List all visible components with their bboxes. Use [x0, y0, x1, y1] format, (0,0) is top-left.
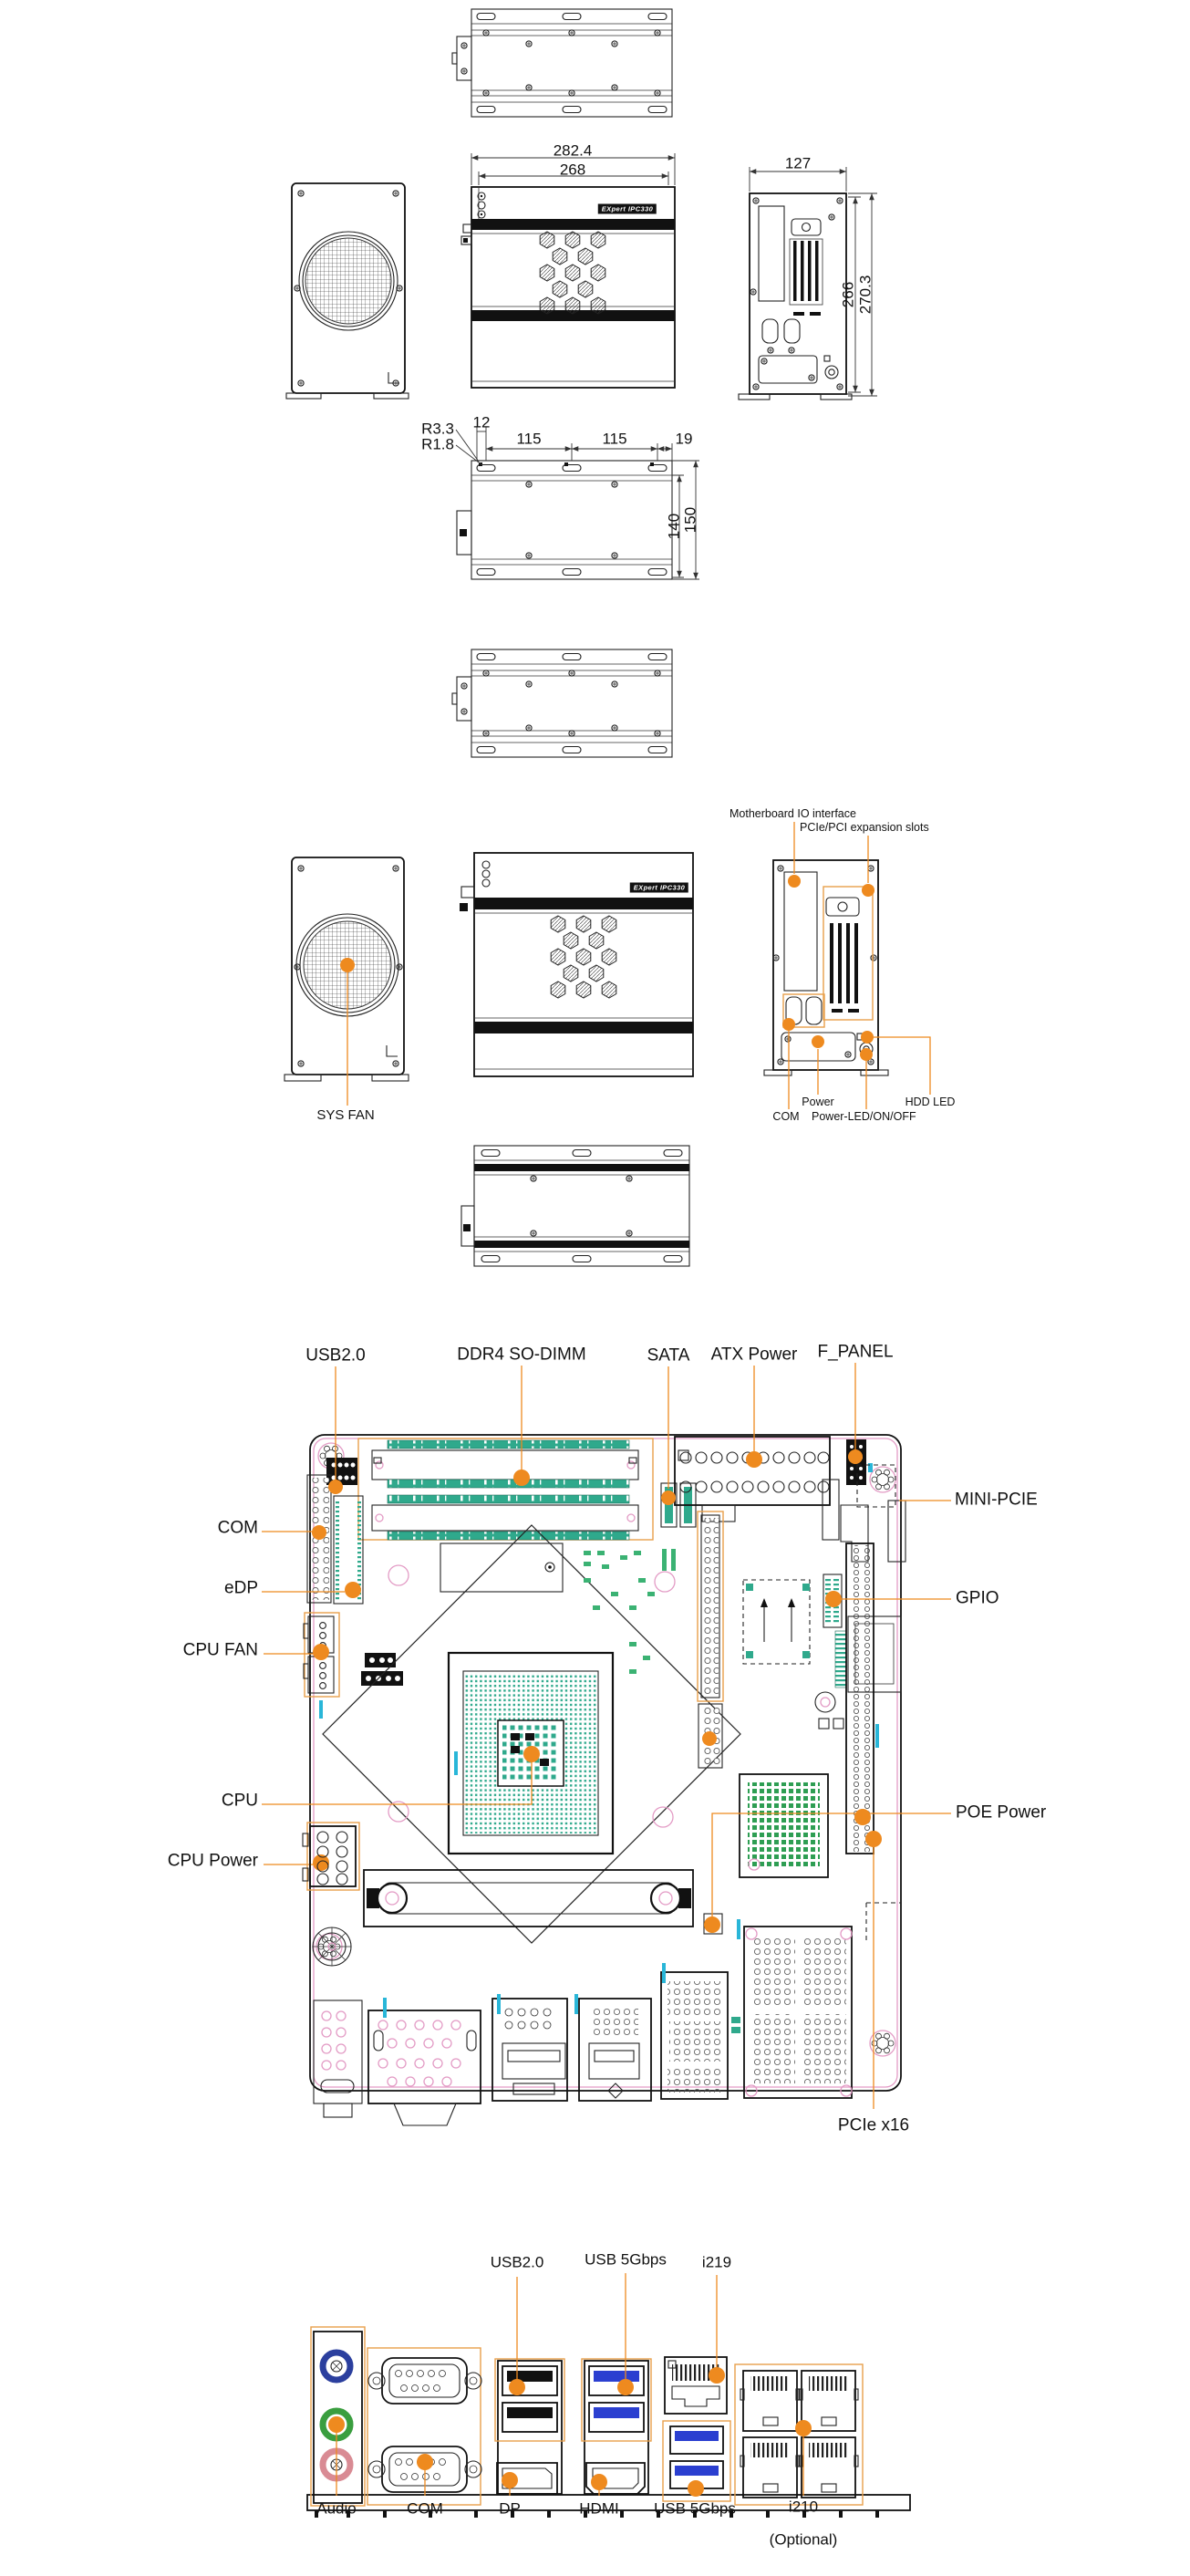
- rear-callout-power-led: Power-LED/ON/OFF: [812, 1111, 916, 1124]
- dim-height-outer: 150: [683, 507, 700, 533]
- mb-label-atx: ATX Power: [711, 1346, 798, 1366]
- callout-dot-io-audio: [328, 2416, 345, 2433]
- callout-dot-pcie-x16: [865, 1831, 882, 1847]
- callout-dot-hdd-led: [861, 1031, 874, 1044]
- io-label-usb5-bottom: USB 5Gbps: [654, 2501, 736, 2519]
- io-label-i210: i210: [789, 2499, 818, 2517]
- product-badge-2: EXpert IPC330: [630, 883, 688, 893]
- rj45-module: [740, 2371, 800, 2431]
- dim-pitch-a: 12: [473, 415, 491, 432]
- io-label-usb5-top: USB 5Gbps: [585, 2252, 667, 2270]
- dimm-slots: [358, 1439, 653, 1540]
- callout-dot-mb-io: [788, 875, 801, 888]
- mb-label-com: COM: [218, 1520, 258, 1539]
- mb-label-f-panel: F_PANEL: [817, 1344, 893, 1363]
- rear-callout-power: Power: [802, 1096, 833, 1109]
- hex-vents-1: [540, 232, 605, 314]
- rear-callout-mb-io: Motherboard IO interface: [730, 808, 856, 821]
- bottom-view-2: [461, 1146, 689, 1266]
- dim-side-width: 127: [785, 156, 811, 173]
- callout-dot-cpu-fan: [313, 1644, 329, 1660]
- motherboard-diagram: [262, 1363, 951, 2125]
- mb-label-cpu-power: CPU Power: [168, 1853, 258, 1872]
- callout-dot-io-dp: [502, 2472, 518, 2488]
- top-view-1: [452, 9, 672, 117]
- mb-label-usb20: USB2.0: [305, 1347, 365, 1366]
- callout-dot-usb20: [328, 1480, 343, 1494]
- pcie-slot-horizontal: [364, 1870, 693, 1927]
- line-art-canvas: [0, 0, 1190, 2576]
- fan-side-view-1: [286, 183, 409, 399]
- audio-jacks: [311, 2327, 365, 2506]
- pcie-x16-riser: [846, 1543, 879, 1854]
- standoff: [313, 1927, 351, 1966]
- mb-label-mini-pcie: MINI-PCIE: [955, 1491, 1038, 1511]
- front-view-1: [461, 153, 675, 388]
- dim-r-inner: R1.8: [421, 437, 454, 454]
- cpu-fan-connectors: [304, 1613, 339, 1719]
- callout-dot-dimm: [513, 1470, 530, 1486]
- rear-callout-hdd-led: HDD LED: [905, 1096, 956, 1109]
- mb-label-cpu: CPU: [222, 1792, 258, 1812]
- mb-label-pcie-x16: PCIe x16: [838, 2117, 909, 2136]
- callout-dot-aux: [702, 1731, 717, 1746]
- mb-label-gpio: GPIO: [956, 1590, 999, 1609]
- mb-label-cpu-fan: CPU FAN: [183, 1642, 258, 1661]
- callout-dot-f-panel: [848, 1449, 863, 1464]
- cpu-power-connector: [303, 1823, 359, 1890]
- callout-dot-sata: [661, 1491, 676, 1505]
- sim-socket: [743, 1580, 810, 1664]
- atx-power-connector: [675, 1437, 830, 1522]
- top-view-2: [452, 649, 672, 757]
- mb-label-dimm: DDR4 SO-DIMM: [457, 1346, 585, 1366]
- callout-dot-gpio: [825, 1591, 842, 1607]
- dim-front-outer: 282.4: [554, 143, 593, 161]
- callout-dot-slots: [862, 884, 874, 897]
- callout-dot-poe-2: [704, 1916, 720, 1933]
- rear-view-annotated: [764, 822, 930, 1109]
- rear-callout-slots: PCIe/PCI expansion slots: [800, 822, 929, 835]
- io-label-dp: DP: [499, 2501, 521, 2519]
- callout-dot-cpu: [523, 1746, 540, 1762]
- bottom-view-dims: [456, 427, 699, 579]
- usb3-hdmi-stack: [582, 2359, 651, 2494]
- front-panel-column-header: [698, 1511, 723, 1701]
- callout-dot-io-usb5-top: [617, 2379, 634, 2395]
- callout-dot-power-led: [860, 1048, 873, 1061]
- poe-chip: [740, 1774, 828, 1877]
- product-badge-1: EXpert IPC330: [598, 204, 657, 214]
- callout-dot-io-i219: [709, 2367, 725, 2384]
- mb-label-sata: SATA: [647, 1347, 690, 1366]
- callout-dot-sys-fan: [340, 958, 355, 972]
- onboard-io-row: [314, 1919, 852, 2125]
- io-panel-diagram: [307, 2273, 910, 2518]
- fan-grille-1: [299, 232, 398, 330]
- callout-dot-com-header: [312, 1525, 326, 1540]
- callout-dot-poe: [854, 1809, 871, 1825]
- m2-slot: [440, 1543, 563, 1592]
- io-label-hdmi: HDMI: [579, 2501, 618, 2519]
- callout-dot-io-i210: [795, 2420, 812, 2436]
- dim-side-outer: 270.3: [858, 275, 875, 315]
- rear-callout-com: COM: [772, 1111, 799, 1124]
- callout-dot-io-hdmi: [591, 2474, 607, 2490]
- callout-dot-com: [782, 1018, 795, 1031]
- io-label-usb20: USB2.0: [491, 2255, 544, 2272]
- fan-side-view-2: [285, 857, 409, 1106]
- dim-front-inner: 268: [560, 162, 585, 180]
- dim-pitch-b: 115: [516, 431, 541, 449]
- rj45-module: [799, 2437, 858, 2498]
- manual-page: { "colors": { "accent_orange": "#EE8A1F"…: [0, 0, 1190, 2576]
- callout-dot-io-usb20: [509, 2379, 525, 2395]
- mb-label-poe: POE Power: [956, 1804, 1046, 1823]
- sys-fan-label: SYS FAN: [316, 1108, 374, 1124]
- io-label-audio: Audio: [316, 2501, 356, 2519]
- jumper-blocks: [361, 1653, 403, 1686]
- dim-pitch-c: 115: [602, 431, 626, 449]
- hex-vents-2: [551, 916, 616, 998]
- callout-dot-edp: [345, 1582, 361, 1598]
- callout-dot-io-com: [417, 2454, 433, 2470]
- callout-dot-io-usb5-bottom: [688, 2480, 704, 2497]
- dim-pitch-d: 19: [676, 431, 693, 449]
- io-label-com: COM: [407, 2501, 443, 2519]
- dim-height-inner: 140: [667, 514, 684, 539]
- rj45-module: [740, 2437, 800, 2498]
- io-panel-leaders: [328, 2273, 812, 2497]
- dim-side-inner: 266: [841, 282, 858, 307]
- mb-label-edp: eDP: [224, 1580, 258, 1599]
- callout-dot-power: [812, 1035, 824, 1048]
- io-label-i210-note: (Optional): [770, 2532, 838, 2550]
- io-label-i219: i219: [702, 2255, 731, 2272]
- callout-dot-atx: [746, 1451, 762, 1468]
